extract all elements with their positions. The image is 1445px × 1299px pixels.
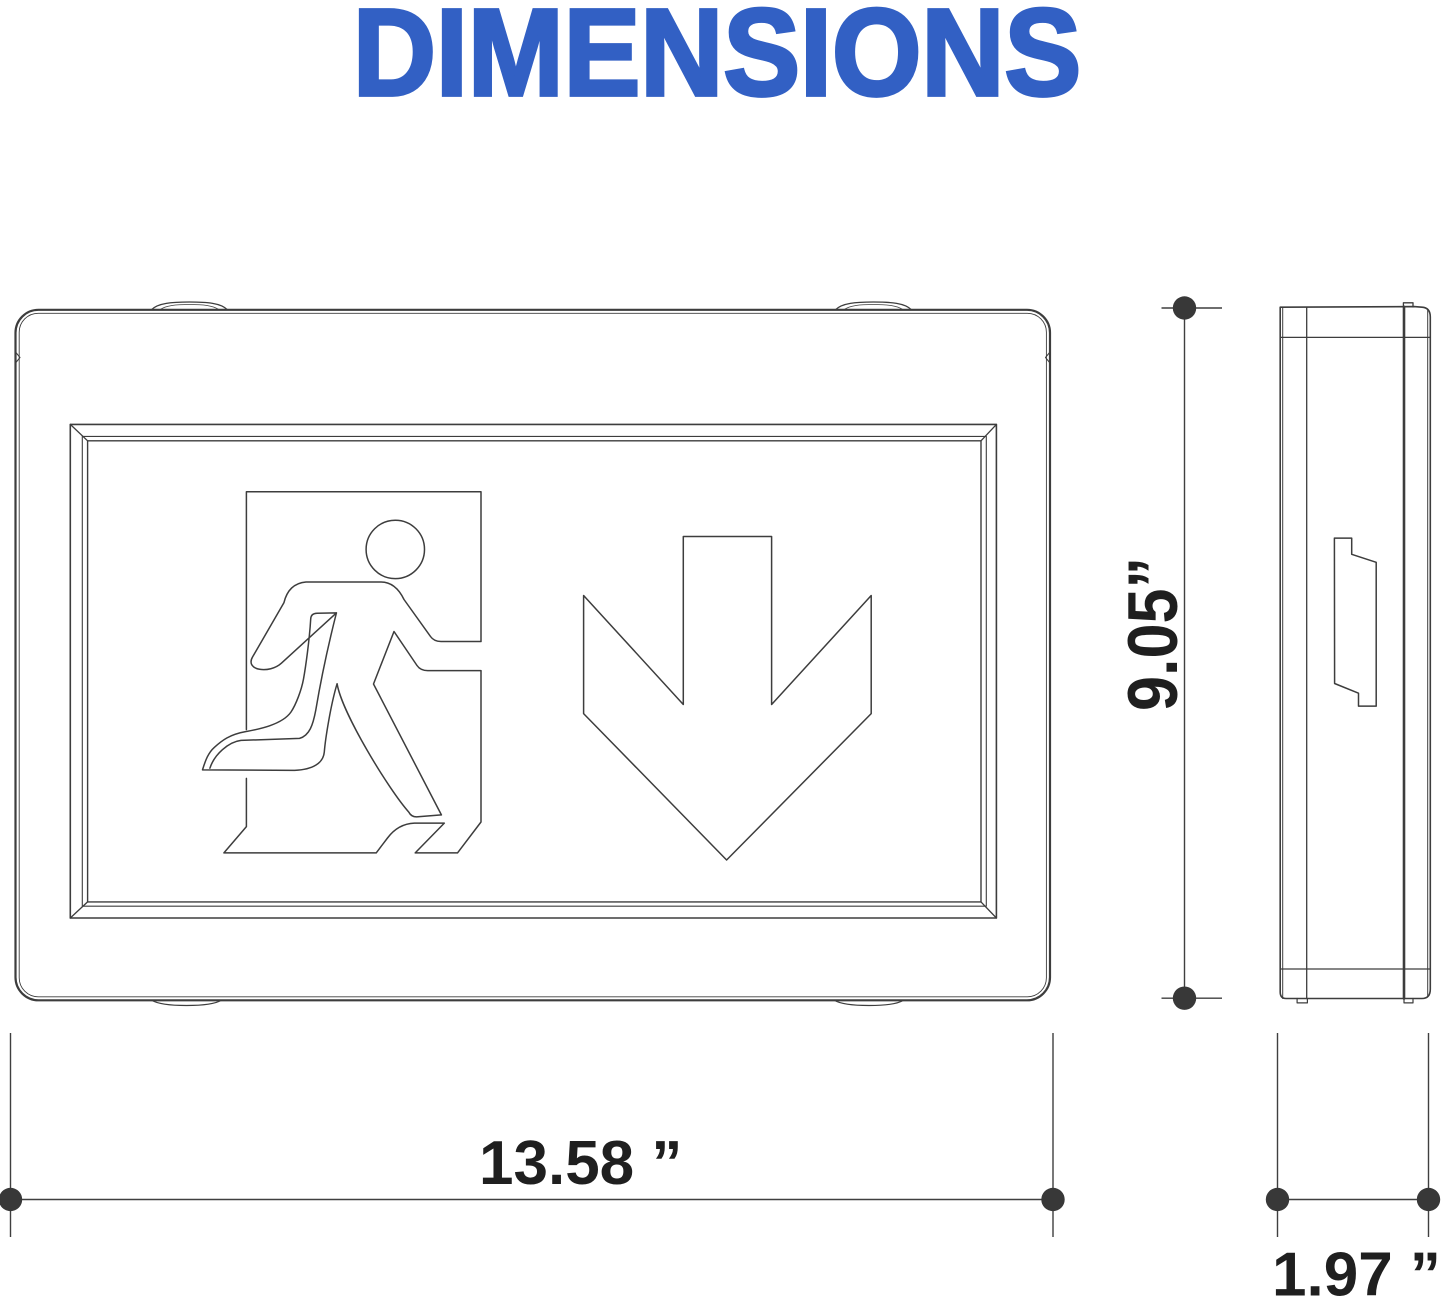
svg-text:9.05”: 9.05” — [1114, 557, 1193, 711]
svg-text:1.97 ”: 1.97 ” — [1272, 1241, 1441, 1299]
svg-text:DIMENSIONS: DIMENSIONS — [353, 0, 1081, 122]
svg-text:13.58 ”: 13.58 ” — [479, 1129, 682, 1198]
